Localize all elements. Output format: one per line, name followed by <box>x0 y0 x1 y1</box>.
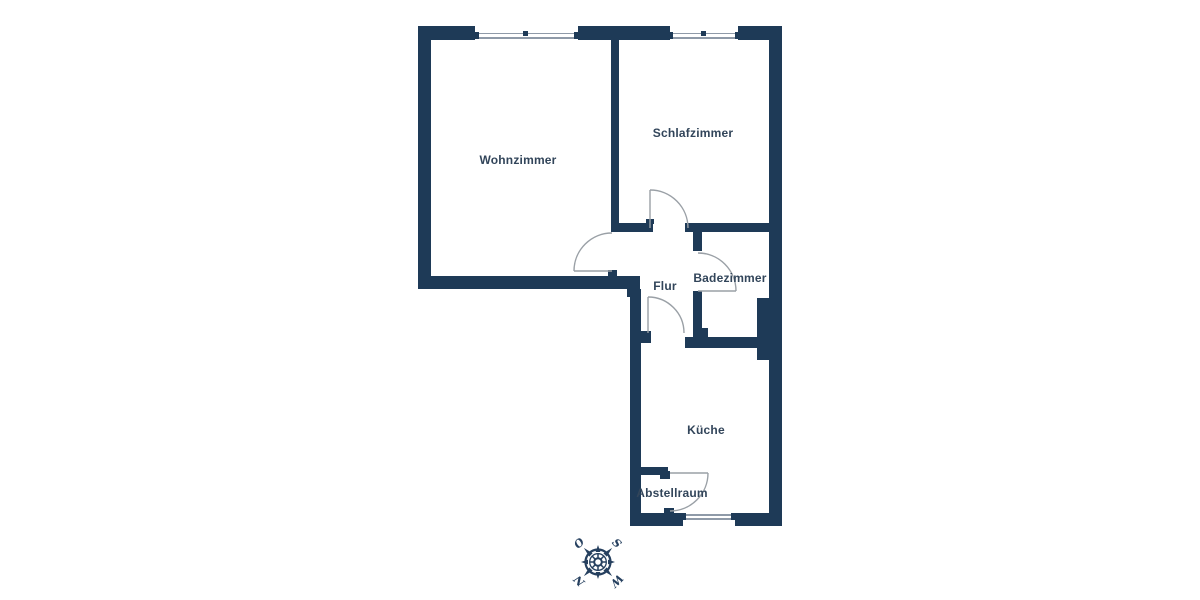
room-label-badezimmer: Badezimmer <box>693 271 766 285</box>
door-arc-kueche <box>648 297 684 333</box>
room-label-schlafzimmer: Schlafzimmer <box>653 126 733 140</box>
compass-hub <box>594 558 602 566</box>
room-label-abstellraum: Abstellraum <box>636 486 708 500</box>
compass-letter-west: W <box>607 572 626 591</box>
door-swing-layer <box>0 0 1200 600</box>
compass-spokes <box>590 554 607 571</box>
door-arc-schlafzimmer <box>650 190 688 228</box>
room-label-kueche: Küche <box>687 423 725 437</box>
room-label-wohnzimmer: Wohnzimmer <box>479 153 556 167</box>
compass-rose-icon: O S N W <box>566 528 630 596</box>
room-label-flur: Flur <box>653 279 676 293</box>
floorplan-canvas: Wohnzimmer Schlafzimmer Flur Badezimmer … <box>0 0 1200 600</box>
door-arc-wohnzimmer <box>574 233 612 271</box>
